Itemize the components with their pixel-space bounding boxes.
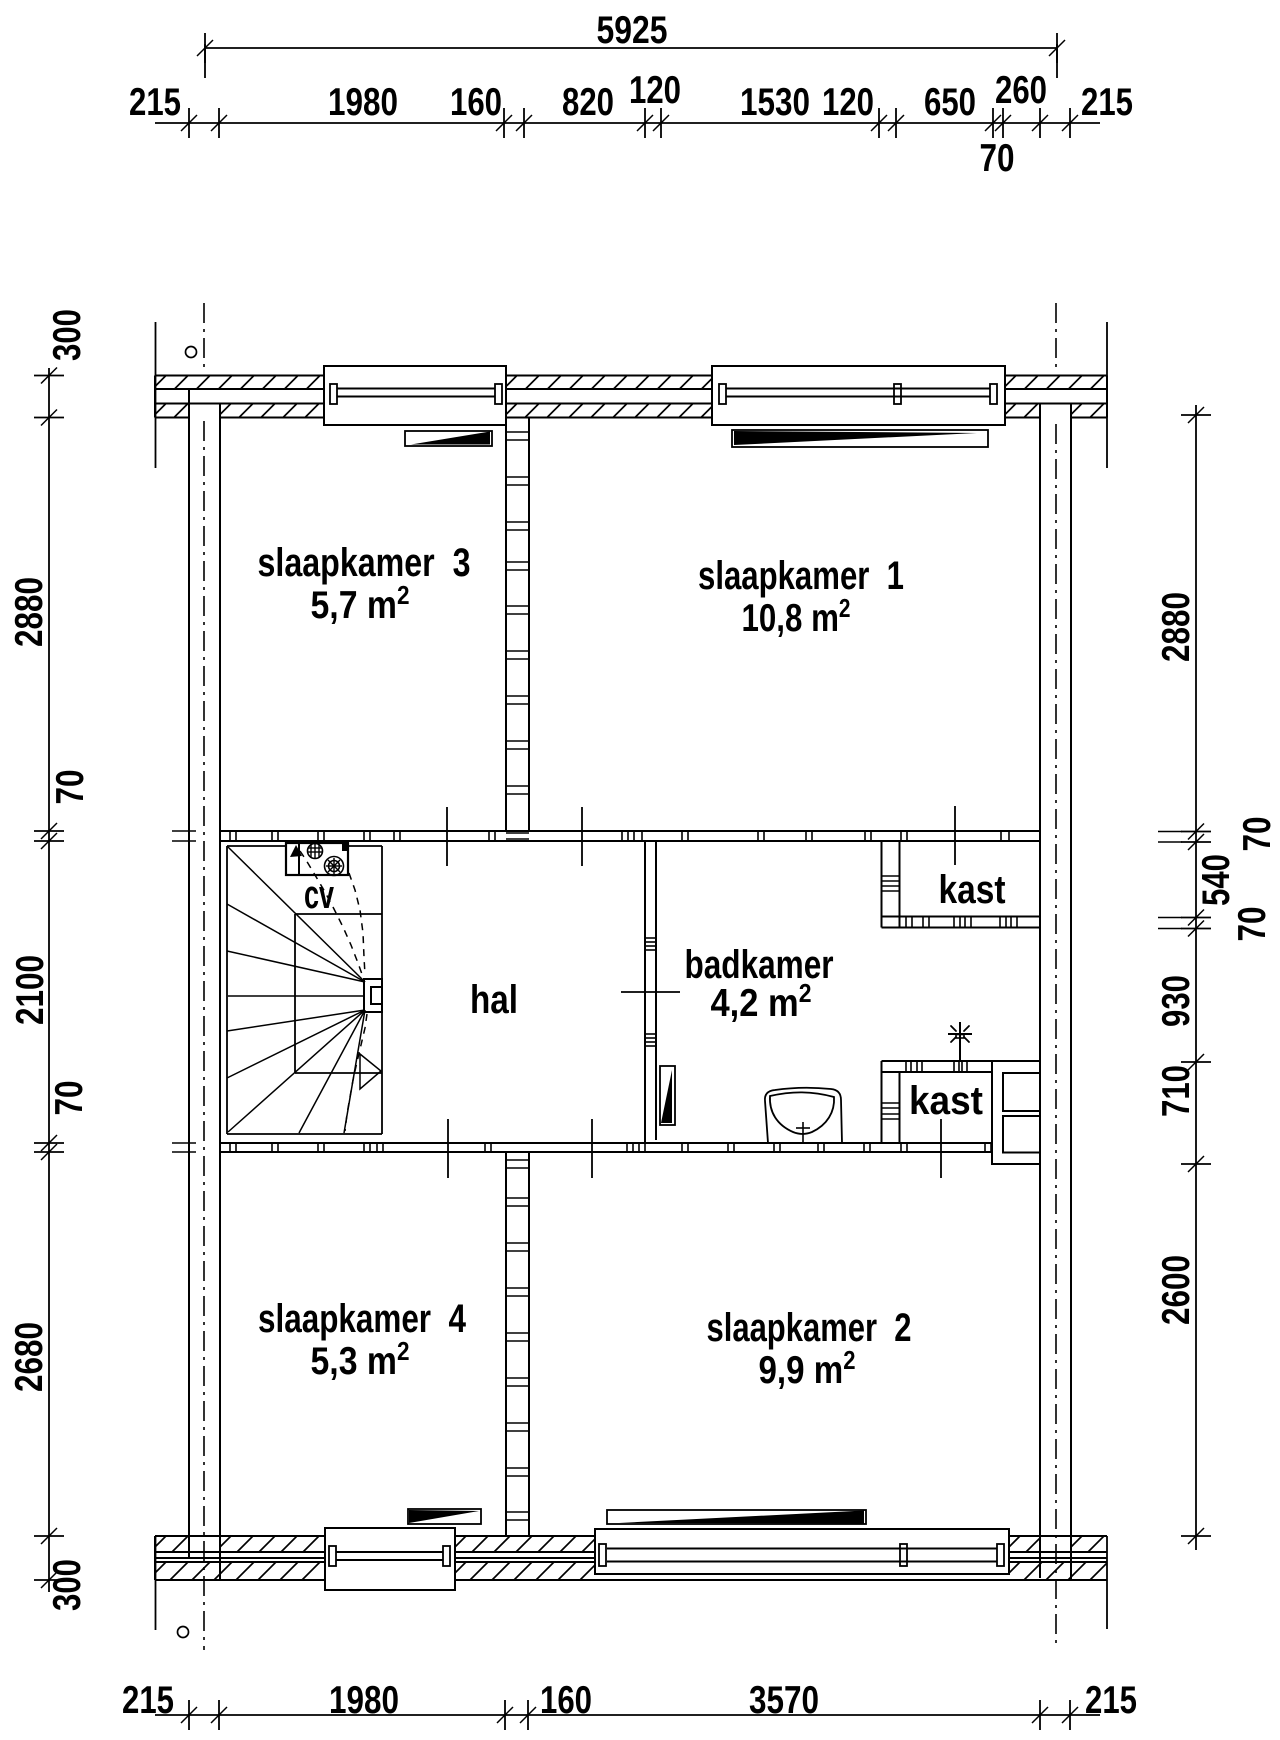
svg-text:1980: 1980 <box>329 1679 399 1722</box>
svg-text:10,8 m2: 10,8 m2 <box>742 593 851 640</box>
svg-text:120: 120 <box>629 69 681 112</box>
svg-text:slaapkamer 1: slaapkamer 1 <box>698 554 904 598</box>
svg-text:70: 70 <box>49 770 92 805</box>
svg-text:260: 260 <box>995 69 1047 112</box>
svg-text:2880: 2880 <box>8 577 51 647</box>
svg-text:70: 70 <box>48 1081 91 1116</box>
svg-text:540: 540 <box>1195 854 1238 906</box>
svg-text:930: 930 <box>1155 975 1198 1027</box>
svg-text:kast: kast <box>939 868 1006 912</box>
svg-text:cv: cv <box>304 873 335 917</box>
svg-text:70: 70 <box>1236 817 1279 852</box>
svg-text:5,3 m2: 5,3 m2 <box>311 1336 410 1383</box>
svg-text:1530: 1530 <box>740 81 810 124</box>
svg-text:5,7 m2: 5,7 m2 <box>311 580 410 627</box>
svg-text:300: 300 <box>46 309 89 361</box>
svg-text:slaapkamer 3: slaapkamer 3 <box>258 541 471 585</box>
svg-text:70: 70 <box>1231 907 1274 942</box>
svg-text:2100: 2100 <box>9 955 52 1025</box>
svg-text:160: 160 <box>540 1679 592 1722</box>
svg-text:1980: 1980 <box>328 81 398 124</box>
svg-text:650: 650 <box>924 81 976 124</box>
svg-text:5925: 5925 <box>597 9 668 52</box>
svg-text:2880: 2880 <box>1155 592 1198 662</box>
svg-text:820: 820 <box>562 81 614 124</box>
svg-text:9,9 m2: 9,9 m2 <box>759 1345 856 1392</box>
svg-text:2600: 2600 <box>1155 1255 1198 1325</box>
svg-text:215: 215 <box>1085 1679 1137 1722</box>
svg-text:215: 215 <box>122 1679 174 1722</box>
svg-text:kast: kast <box>909 1079 983 1123</box>
svg-text:70: 70 <box>980 137 1015 180</box>
svg-text:slaapkamer 2: slaapkamer 2 <box>707 1306 912 1350</box>
svg-text:160: 160 <box>450 81 502 124</box>
svg-text:300: 300 <box>46 1559 89 1611</box>
svg-text:slaapkamer 4: slaapkamer 4 <box>258 1297 467 1341</box>
svg-text:3570: 3570 <box>749 1679 819 1722</box>
svg-text:215: 215 <box>129 81 181 124</box>
svg-text:710: 710 <box>1155 1065 1198 1117</box>
svg-text:215: 215 <box>1081 81 1133 124</box>
svg-text:4,2 m2: 4,2 m2 <box>711 978 812 1025</box>
svg-text:2680: 2680 <box>8 1322 51 1392</box>
svg-text:120: 120 <box>822 81 874 124</box>
svg-text:hal: hal <box>470 978 518 1022</box>
